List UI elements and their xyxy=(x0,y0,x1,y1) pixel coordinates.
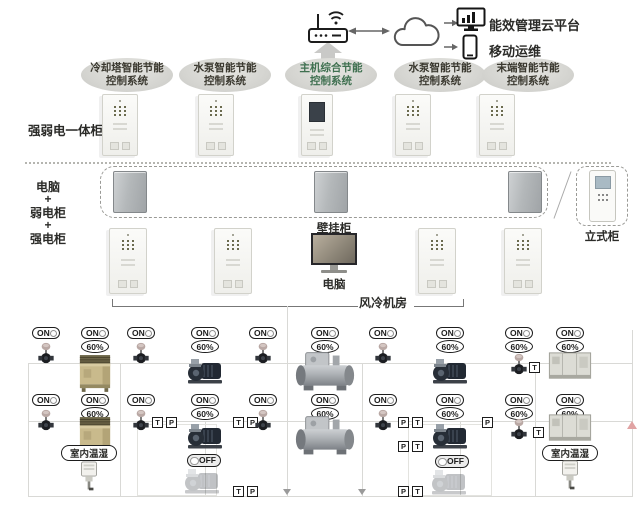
status-badge-off: OFF xyxy=(435,455,469,468)
sensor-tag-t: T xyxy=(412,417,423,428)
control-cabinet xyxy=(198,94,234,156)
speed-badge: 60% xyxy=(436,407,464,420)
pump-icon xyxy=(187,423,223,449)
machine-room-bracket-left xyxy=(112,299,358,307)
valve-icon xyxy=(511,353,527,376)
status-badge: ON xyxy=(191,327,219,339)
ahu-icon xyxy=(548,413,592,443)
status-badge: ON xyxy=(249,327,277,339)
valve-icon xyxy=(133,409,149,432)
control-cabinet xyxy=(395,94,431,156)
pipe xyxy=(120,363,121,497)
flow-arrow-down xyxy=(283,489,291,495)
standby-pump-icon xyxy=(431,469,467,495)
stack-label-strong-cabinet: 强电柜 xyxy=(22,230,74,247)
wall-mounted-box xyxy=(508,171,542,213)
status-badge: ON xyxy=(127,394,155,406)
status-badge: ON xyxy=(369,394,397,406)
control-cabinet-with-screen xyxy=(301,94,333,156)
computer-monitor xyxy=(311,233,357,273)
cloud-icon xyxy=(390,13,444,53)
standing-cabinet xyxy=(589,170,616,222)
status-badge: ON xyxy=(249,394,277,406)
system-oval-terminal: 末端智能节能控制系统 xyxy=(482,58,574,92)
dashboard-monitor-icon xyxy=(456,7,486,33)
pipe xyxy=(632,330,633,497)
power-cabinet xyxy=(504,228,542,294)
pump-icon xyxy=(432,358,468,384)
status-badge-off: OFF xyxy=(187,454,221,467)
sensor-tag-t: T xyxy=(412,486,423,497)
indoor-temp-humidity-label: 室内温湿 xyxy=(542,445,598,461)
section-divider xyxy=(25,162,611,164)
status-badge: ON xyxy=(127,327,155,339)
flow-arrow-up xyxy=(627,421,637,429)
wall-mounted-box xyxy=(314,171,348,213)
valve-icon xyxy=(375,342,391,365)
pump-icon xyxy=(432,423,468,449)
chiller-icon xyxy=(294,350,356,394)
sensor-tag-t: T xyxy=(412,441,423,452)
sensor-tag-p: P xyxy=(398,441,409,452)
valve-icon xyxy=(133,342,149,365)
mobile-phone-icon xyxy=(462,34,478,60)
system-oval-pump-2: 水泵智能节能控制系统 xyxy=(394,58,486,92)
valve-icon xyxy=(38,409,54,432)
sensor-tag-t: T xyxy=(529,362,540,373)
system-oval-cooling-tower: 冷却塔智能节能控制系统 xyxy=(81,58,173,92)
status-badge: ON xyxy=(32,394,60,406)
ahu-icon xyxy=(548,351,592,381)
monitor-screen xyxy=(311,233,357,265)
integrated-cabinet-label: 强弱电一体柜 xyxy=(28,120,103,139)
speed-badge: 60% xyxy=(505,340,533,353)
sensor-tag-p: P xyxy=(247,486,258,497)
status-badge: ON xyxy=(311,327,339,339)
status-badge: ON xyxy=(32,327,60,339)
status-badge: ON xyxy=(311,394,339,406)
pipe xyxy=(287,306,288,497)
control-cabinet xyxy=(479,94,515,156)
chiller-icon xyxy=(294,414,356,458)
platform-label: 能效管理云平台 xyxy=(489,15,580,34)
power-cabinet xyxy=(214,228,252,294)
sensor-tag-t: T xyxy=(533,427,544,438)
sensor-tag-t: T xyxy=(152,417,163,428)
status-badge: ON xyxy=(191,394,219,406)
valve-icon xyxy=(255,342,271,365)
status-badge: ON xyxy=(369,327,397,339)
pump-icon xyxy=(187,358,223,384)
speed-badge: 60% xyxy=(436,340,464,353)
hvac-energy-system-diagram: 能效管理云平台 移动运维 冷却塔智能节能控制系统 水泵智能节能控制系统 主机综合… xyxy=(0,0,640,507)
valve-icon xyxy=(511,418,527,441)
cooling-tower-icon xyxy=(78,353,112,393)
system-oval-host: 主机综合节能控制系统 xyxy=(285,58,377,92)
wifi-router-icon xyxy=(306,6,350,46)
power-cabinet xyxy=(109,228,147,294)
speed-badge: 60% xyxy=(191,340,219,353)
status-badge: ON xyxy=(505,394,533,406)
system-oval-pump-1: 水泵智能节能控制系统 xyxy=(179,58,271,92)
cloud-mobile-arrow xyxy=(444,43,458,51)
control-cabinet xyxy=(102,94,138,156)
status-badge: ON xyxy=(436,394,464,406)
pipe xyxy=(28,363,29,497)
router-cloud-arrow xyxy=(348,26,390,36)
wall-mounted-box xyxy=(113,171,147,213)
status-badge: ON xyxy=(505,327,533,339)
indoor-temp-humidity-label: 室内温湿 xyxy=(61,445,117,461)
valve-icon xyxy=(375,409,391,432)
flow-arrow-down xyxy=(358,489,366,495)
status-badge: ON xyxy=(436,327,464,339)
standby-pump-icon xyxy=(184,468,220,494)
sensor-tag-t: T xyxy=(233,417,244,428)
valve-icon xyxy=(255,409,271,432)
pipe xyxy=(362,363,363,497)
indoor-sensor-icon xyxy=(559,460,581,492)
valve-icon xyxy=(38,342,54,365)
divider-slash xyxy=(553,171,571,218)
status-badge: ON xyxy=(556,394,584,406)
standing-cabinet-label: 立式柜 xyxy=(576,228,628,244)
sensor-tag-p: P xyxy=(482,417,493,428)
pipe xyxy=(28,496,632,497)
status-badge: ON xyxy=(81,394,109,406)
status-badge: ON xyxy=(556,327,584,339)
machine-room-label: 风冷机房 xyxy=(352,294,414,311)
power-cabinet xyxy=(418,228,456,294)
speed-badge: 60% xyxy=(81,340,109,353)
sensor-tag-t: T xyxy=(233,486,244,497)
speed-badge: 60% xyxy=(191,407,219,420)
machine-room-bracket-right xyxy=(414,299,464,307)
computer-label: 电脑 xyxy=(310,276,358,292)
indoor-sensor-icon xyxy=(78,461,100,493)
sensor-tag-p: P xyxy=(166,417,177,428)
sensor-tag-p: P xyxy=(398,417,409,428)
sensor-tag-p: P xyxy=(398,486,409,497)
status-badge: ON xyxy=(81,327,109,339)
